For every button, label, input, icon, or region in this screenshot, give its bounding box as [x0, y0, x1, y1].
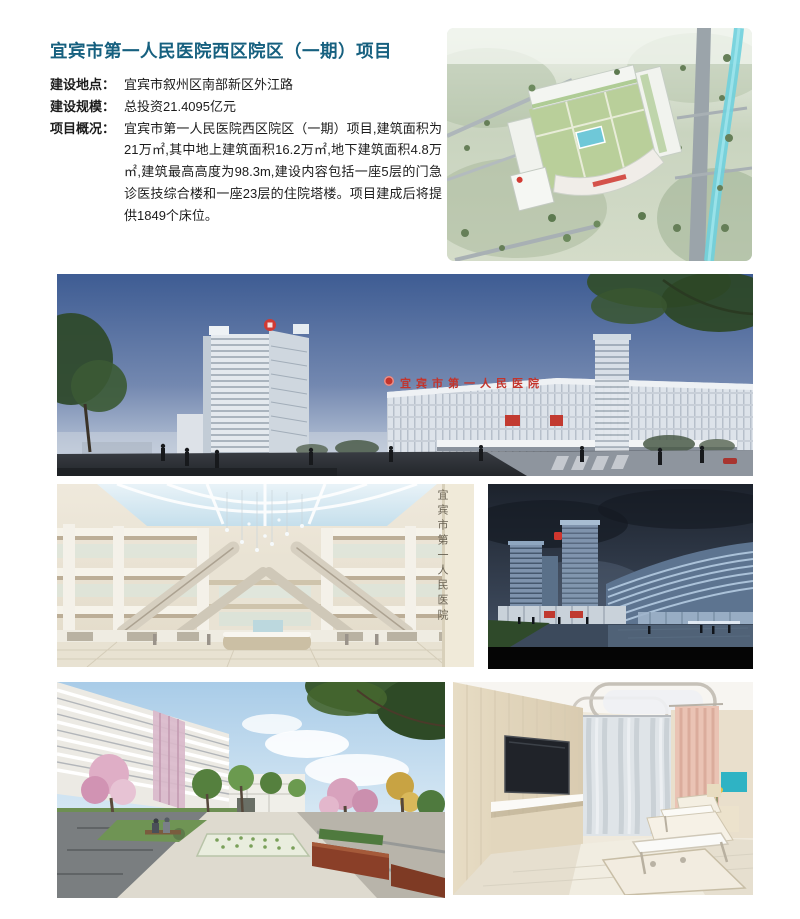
ward-art — [453, 682, 753, 895]
project-info: 建设地点： 宜宾市叙州区南部新区外江路 建设规模： 总投资21.4095亿元 项… — [50, 74, 442, 227]
dusk-art — [488, 484, 753, 669]
info-row-location: 建设地点： 宜宾市叙州区南部新区外江路 — [50, 74, 442, 96]
aerial-art — [447, 28, 752, 261]
scale-label: 建设规模： — [50, 96, 124, 118]
panorama-rendering-image: 宜宾市第一人民医院 — [57, 274, 753, 476]
overview-value: 宜宾市第一人民医院西区院区（一期）项目,建筑面积为21万㎡,其中地上建筑面积16… — [124, 118, 442, 227]
ward-rendering-image — [453, 682, 753, 895]
info-row-scale: 建设规模： 总投资21.4095亿元 — [50, 96, 442, 118]
atrium-wall-sign: 宜宾市第一人民医院 — [434, 489, 450, 624]
plaza-rendering-image — [57, 682, 445, 898]
overview-label: 项目概况： — [50, 118, 124, 140]
aerial-rendering-image — [447, 28, 752, 261]
dusk-rendering-image — [488, 484, 753, 669]
hospital-logo-icon — [384, 376, 394, 386]
location-value: 宜宾市叙州区南部新区外江路 — [124, 74, 442, 96]
location-label: 建设地点： — [50, 74, 124, 96]
atrium-art — [57, 484, 474, 667]
atrium-rendering-image: 宜宾市第一人民医院 — [57, 484, 474, 667]
panorama-building-sign: 宜宾市第一人民医院 — [400, 375, 544, 391]
info-row-overview: 项目概况： 宜宾市第一人民医院西区院区（一期）项目,建筑面积为21万㎡,其中地上… — [50, 118, 442, 227]
scale-value: 总投资21.4095亿元 — [124, 96, 442, 118]
plaza-art — [57, 682, 445, 898]
page-title: 宜宾市第一人民医院西区院区（一期）项目 — [50, 38, 392, 63]
document-page: 宜宾市第一人民医院西区院区（一期）项目 建设地点： 宜宾市叙州区南部新区外江路 … — [0, 0, 800, 919]
